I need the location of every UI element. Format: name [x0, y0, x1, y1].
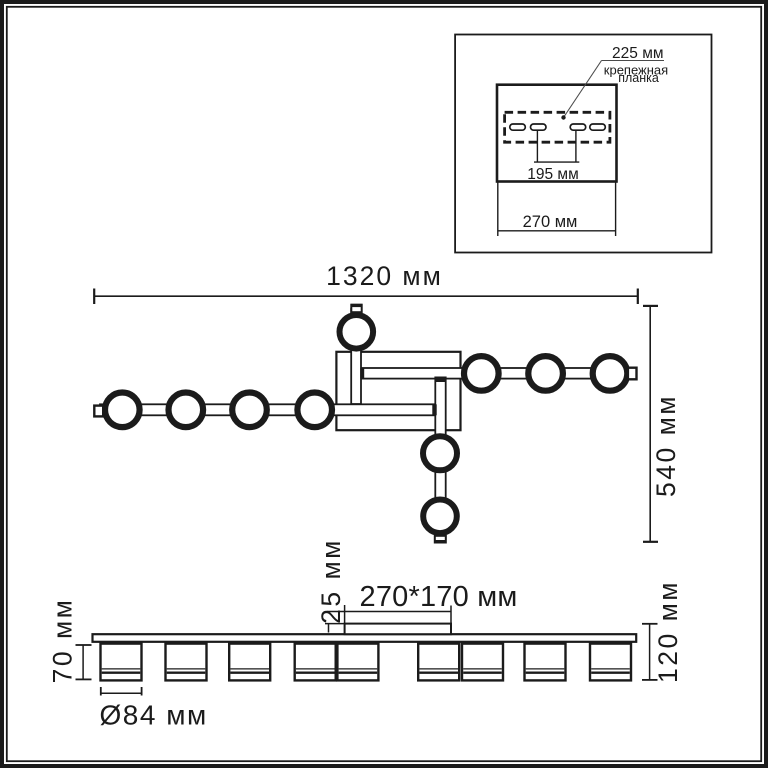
svg-text:270 мм: 270 мм — [523, 213, 578, 231]
svg-text:225 мм: 225 мм — [612, 45, 663, 62]
svg-text:Ø84 мм: Ø84 мм — [100, 700, 208, 731]
svg-text:540 мм: 540 мм — [651, 394, 681, 497]
svg-text:270*170 мм: 270*170 мм — [360, 581, 518, 613]
svg-text:25 мм: 25 мм — [316, 538, 346, 624]
svg-text:195 мм: 195 мм — [527, 166, 578, 183]
svg-text:120 мм: 120 мм — [653, 580, 683, 683]
svg-text:планка: планка — [618, 71, 659, 85]
svg-text:70 мм: 70 мм — [48, 598, 78, 684]
svg-text:1320 мм: 1320 мм — [326, 261, 443, 291]
